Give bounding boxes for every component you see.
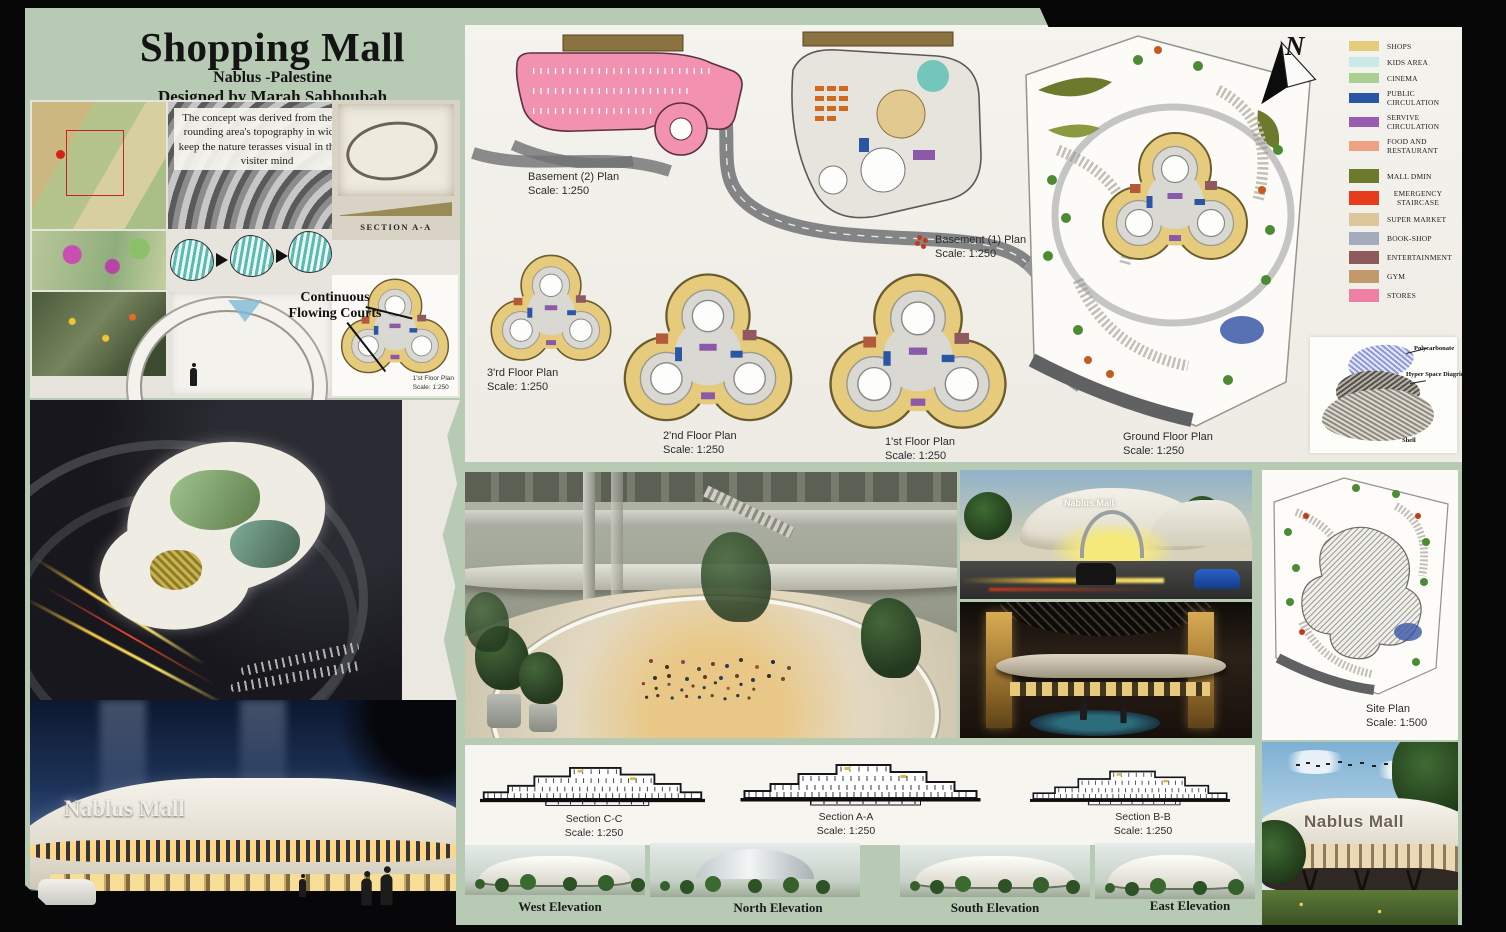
birds-flock bbox=[1296, 764, 1300, 766]
legend-row: EMERGENCY STAIRCASE bbox=[1349, 189, 1461, 207]
title-block: Shopping Mall Nablus -Palestine Designed… bbox=[85, 26, 460, 98]
light-trail bbox=[960, 578, 1164, 583]
mall-sign: Nablus Mall bbox=[64, 796, 185, 822]
window-band bbox=[30, 840, 456, 862]
elevation-trees bbox=[910, 881, 920, 891]
elevation-building bbox=[479, 856, 630, 885]
street-tree bbox=[964, 492, 1012, 540]
legend-swatch bbox=[1349, 289, 1379, 302]
basement2-plan-drawing bbox=[503, 33, 748, 168]
legend-label: SHOPS bbox=[1387, 42, 1411, 51]
legend-label: FOOD AND RESTAURANT bbox=[1387, 137, 1461, 155]
north-label: N bbox=[1285, 31, 1305, 62]
legend-swatch bbox=[1349, 251, 1379, 264]
person-silhouette bbox=[381, 875, 393, 906]
lawn bbox=[1262, 890, 1458, 926]
plan-scale: Scale: 1:250 bbox=[935, 247, 1026, 261]
annotation-line1: Continuous bbox=[272, 290, 398, 306]
project-location: Nablus -Palestine bbox=[85, 69, 460, 87]
second-floor-plan-drawing bbox=[617, 271, 799, 427]
presentation-board-page: Shopping Mall Nablus -Palestine Designed… bbox=[0, 0, 1506, 932]
legend: SHOPS KIDS AREA CINEMA PUBLIC CIRCULATIO… bbox=[1349, 41, 1461, 308]
person-silhouette bbox=[1120, 707, 1126, 723]
legend-label: SUPER MARKET bbox=[1387, 215, 1446, 224]
section-aa-label: Section A-A Scale: 1:250 bbox=[776, 811, 916, 838]
mini-plan-name: 1'st Floor Plan bbox=[413, 375, 454, 383]
legend-swatch bbox=[1349, 93, 1379, 103]
aerial-night-render bbox=[30, 400, 402, 700]
van-silhouette bbox=[38, 879, 96, 905]
first-floor-plan-drawing bbox=[817, 271, 1019, 435]
second-floor-label: 2'nd Floor Plan Scale: 1:250 bbox=[663, 429, 737, 458]
plan-scale: Scale: 1:250 bbox=[487, 380, 558, 394]
legend-label: CINEMA bbox=[1387, 74, 1418, 83]
mall-sign: Nablus Mall bbox=[1304, 812, 1404, 832]
plan-name: Basement (2) Plan bbox=[528, 170, 619, 184]
legend-label: BOOK-SHOP bbox=[1387, 234, 1432, 243]
plan-scale: Scale: 1:500 bbox=[1366, 716, 1427, 730]
legend-row: ENTERTAINMENT bbox=[1349, 251, 1461, 264]
elevation-building bbox=[915, 856, 1075, 886]
section-cc-drawing bbox=[480, 753, 705, 811]
plan-name: Basement (1) Plan bbox=[935, 233, 1026, 247]
legend-swatch bbox=[1349, 73, 1379, 83]
legend-swatch bbox=[1349, 213, 1379, 226]
material-label: Shell bbox=[1402, 437, 1416, 444]
elevation-building bbox=[1108, 855, 1242, 887]
legend-row: MALL DMIN bbox=[1349, 169, 1461, 183]
suv-car bbox=[1076, 563, 1116, 585]
terrace-sketch-3 bbox=[288, 231, 332, 273]
ramp-wedge-shape bbox=[340, 202, 452, 216]
legend-label: GYM bbox=[1387, 272, 1405, 281]
courts-annotation: Continuous Flowing Courts bbox=[272, 290, 398, 322]
cloud bbox=[1280, 750, 1350, 774]
legend-row: CINEMA bbox=[1349, 73, 1461, 83]
plan-name: Ground Floor Plan bbox=[1123, 430, 1213, 444]
frame-top-right-notch bbox=[1040, 0, 1462, 27]
legend-row: KIDS AREA bbox=[1349, 57, 1461, 67]
mini-plan-label: 1'st Floor Plan Scale: 1:250 bbox=[413, 375, 454, 392]
section-name: Section B-B bbox=[1073, 811, 1213, 825]
elevation-dome bbox=[696, 849, 814, 879]
basement2-label: Basement (2) Plan Scale: 1:250 bbox=[528, 170, 619, 199]
legend-swatch bbox=[1349, 232, 1379, 245]
light-trail bbox=[989, 588, 1164, 591]
plan-name: 2'nd Floor Plan bbox=[663, 429, 737, 443]
legend-label: KIDS AREA bbox=[1387, 58, 1428, 67]
legend-row: FOOD AND RESTAURANT bbox=[1349, 137, 1461, 155]
section-bb-drawing bbox=[1020, 759, 1240, 809]
legend-row: STORES bbox=[1349, 289, 1461, 302]
frame-right bbox=[1462, 0, 1506, 932]
map-site-marker bbox=[56, 150, 65, 159]
material-label: Polycarbonate bbox=[1414, 345, 1454, 352]
site-plan-label: Site Plan Scale: 1:500 bbox=[1366, 702, 1427, 731]
legend-row: BOOK-SHOP bbox=[1349, 232, 1461, 245]
elevation-trees bbox=[660, 881, 670, 891]
section-scale: Scale: 1:250 bbox=[776, 825, 916, 839]
plan-name: 3'rd Floor Plan bbox=[487, 366, 558, 380]
third-floor-label: 3'rd Floor Plan Scale: 1:250 bbox=[487, 366, 558, 395]
terrace-sketch-1 bbox=[170, 239, 214, 281]
daytime-exterior-render: Nablus Mall bbox=[1262, 742, 1458, 926]
tree-dots-icon bbox=[917, 235, 922, 240]
section-aa-drawing bbox=[733, 750, 988, 810]
legend-row: SERVIVE CIRCULATION bbox=[1349, 113, 1461, 131]
person-silhouette bbox=[1080, 702, 1087, 720]
legend-row: PUBLIC CIRCULATION bbox=[1349, 89, 1461, 107]
page-title: Shopping Mall bbox=[85, 26, 460, 69]
legend-swatch bbox=[1349, 117, 1379, 127]
diagrid-ceiling bbox=[1000, 602, 1212, 636]
west-elevation-image bbox=[465, 845, 645, 895]
arrow-icon bbox=[216, 253, 228, 267]
potted-plant bbox=[861, 598, 921, 678]
legend-label: STORES bbox=[1387, 291, 1416, 300]
site-plan-drawing bbox=[1266, 472, 1454, 698]
west-elevation-label: West Elevation bbox=[475, 899, 645, 915]
frame-bottom bbox=[0, 925, 1506, 932]
legend-label: MALL DMIN bbox=[1387, 172, 1432, 181]
legend-swatch bbox=[1349, 270, 1379, 283]
analysis-map-image bbox=[32, 231, 166, 290]
legend-row: SUPER MARKET bbox=[1349, 213, 1461, 226]
location-map-image bbox=[32, 102, 166, 229]
legend-label: EMERGENCY STAIRCASE bbox=[1387, 189, 1449, 207]
floor-plans-panel: Basement (2) Plan Scale: 1:250 Basement … bbox=[465, 25, 1462, 462]
lit-storefronts bbox=[1010, 682, 1210, 696]
elevation-trees bbox=[475, 879, 485, 889]
legend-label: SERVIVE CIRCULATION bbox=[1387, 113, 1461, 131]
section-cc-label: Section C-C Scale: 1:250 bbox=[524, 813, 664, 840]
terrace-sketch-strip bbox=[170, 231, 330, 290]
section-scale: Scale: 1:250 bbox=[1073, 825, 1213, 839]
palm-plant bbox=[465, 592, 509, 652]
courtyard-night-render bbox=[960, 602, 1252, 738]
arrow-icon bbox=[276, 249, 288, 263]
plan-scale: Scale: 1:250 bbox=[1123, 444, 1213, 458]
plan-scale: Scale: 1:250 bbox=[885, 449, 955, 463]
legend-swatch bbox=[1349, 57, 1379, 67]
upper-bridge bbox=[465, 510, 957, 526]
third-floor-plan-drawing bbox=[477, 253, 625, 365]
pool-glow bbox=[1030, 710, 1160, 736]
plan-scale: Scale: 1:250 bbox=[528, 184, 619, 198]
legend-row: GYM bbox=[1349, 270, 1461, 283]
basement1-label: Basement (1) Plan Scale: 1:250 bbox=[935, 233, 1026, 262]
ground-floor-label: Ground Floor Plan Scale: 1:250 bbox=[1123, 430, 1213, 459]
atrium-interior-render bbox=[465, 472, 957, 738]
frame-left bbox=[0, 0, 25, 932]
street-exterior-render: Nablus Mall bbox=[960, 470, 1252, 599]
section-bb-label: Section B-B Scale: 1:250 bbox=[1073, 811, 1213, 838]
north-elevation-image bbox=[650, 843, 860, 897]
elevation-trees bbox=[1105, 883, 1115, 893]
legend-swatch bbox=[1349, 141, 1379, 151]
east-elevation-image bbox=[1095, 843, 1255, 899]
sections-panel: Section C-C Scale: 1:250 Section A-A Sca… bbox=[465, 745, 1255, 845]
person-silhouette bbox=[299, 879, 306, 897]
materials-diagram: Polycarbonate Hyper Space Diagrid Shell bbox=[1310, 337, 1457, 453]
first-floor-label: 1'st Floor Plan Scale: 1:250 bbox=[885, 435, 955, 464]
legend-swatch bbox=[1349, 41, 1379, 51]
section-name: Section C-C bbox=[524, 813, 664, 827]
plan-name: Site Plan bbox=[1366, 702, 1427, 716]
sketch-caption: SECTION A-A bbox=[332, 222, 460, 232]
exterior-night-render: Nablus Mall bbox=[30, 700, 456, 925]
south-elevation-label: South Elevation bbox=[910, 900, 1080, 916]
plan-name: 1'st Floor Plan bbox=[885, 435, 955, 449]
south-elevation-image bbox=[900, 845, 1090, 897]
section-name: Section A-A bbox=[776, 811, 916, 825]
balcony-edge bbox=[996, 654, 1226, 678]
site-plan-panel: Site Plan Scale: 1:500 bbox=[1262, 470, 1458, 740]
legend-swatch bbox=[1349, 169, 1379, 183]
planter-pot bbox=[529, 704, 557, 732]
basement1-plan-drawing bbox=[763, 30, 985, 235]
section-scale: Scale: 1:250 bbox=[524, 827, 664, 841]
concept-collage-panel: The concept was derived from the sur- ro… bbox=[30, 100, 460, 398]
planter-pot bbox=[487, 694, 521, 728]
person-silhouette bbox=[361, 879, 372, 906]
east-elevation-label: East Elevation bbox=[1105, 898, 1275, 914]
blue-car bbox=[1194, 569, 1240, 589]
north-elevation-label: North Elevation bbox=[693, 900, 863, 916]
section-sketch-panel: SECTION A-A bbox=[332, 100, 460, 240]
legend-label: ENTERTAINMENT bbox=[1387, 253, 1452, 262]
mini-plan-scale: Scale: 1:250 bbox=[413, 384, 454, 392]
map-highlight-box bbox=[66, 130, 124, 196]
plan-scale: Scale: 1:250 bbox=[663, 443, 737, 457]
legend-label: PUBLIC CIRCULATION bbox=[1387, 89, 1461, 107]
indoor-tree bbox=[701, 532, 771, 622]
material-label: Hyper Space Diagrid bbox=[1406, 371, 1464, 378]
terrace-sketch-2 bbox=[230, 235, 274, 277]
legend-row: SHOPS bbox=[1349, 41, 1461, 51]
person-silhouette bbox=[190, 368, 197, 386]
legend-swatch bbox=[1349, 191, 1379, 205]
mall-sign: Nablus Mall bbox=[1064, 498, 1114, 508]
